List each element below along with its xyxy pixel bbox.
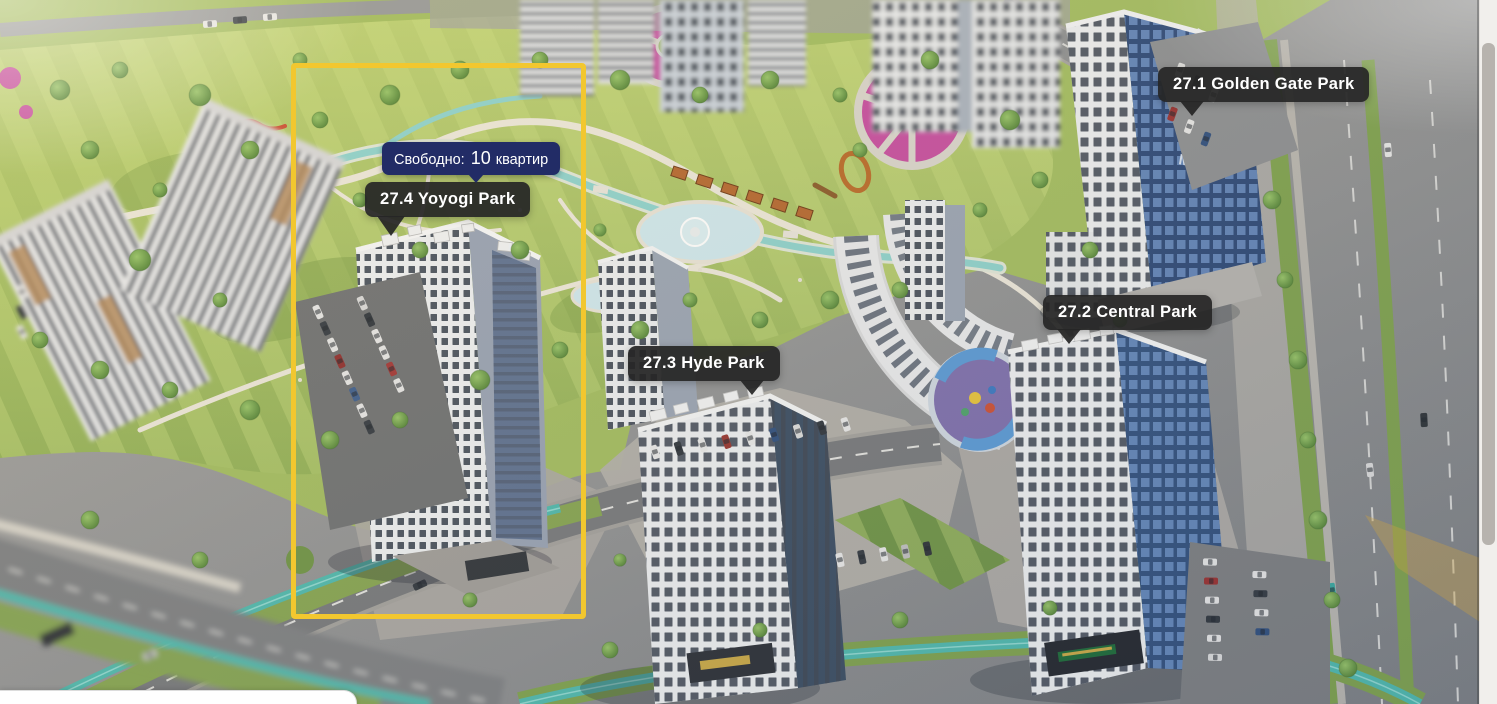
building-marker-27-4[interactable]: 27.4 Yoyogi Park: [365, 182, 530, 217]
building-marker-label: 27.4 Yoyogi Park: [380, 190, 515, 208]
availability-unit: квартир: [496, 152, 549, 168]
building-marker-label: 27.3 Hyde Park: [643, 354, 765, 372]
availability-label: Свободно:: [394, 152, 465, 168]
availability-count: 10: [471, 148, 491, 169]
scrollbar-thumb[interactable]: [1482, 43, 1495, 545]
marker-pointer-icon: [1180, 101, 1204, 116]
availability-tooltip: Свободно: 10 квартир: [382, 142, 560, 175]
tooltip-pointer-icon: [468, 174, 484, 183]
building-marker-label: 27.2 Central Park: [1058, 303, 1197, 321]
scrollbar[interactable]: [1479, 0, 1497, 704]
marker-pointer-icon: [1057, 329, 1081, 344]
building-marker-27-1[interactable]: 27.1 Golden Gate Park: [1158, 67, 1369, 102]
marker-pointer-icon: [377, 216, 405, 236]
marker-pointer-icon: [740, 380, 764, 395]
building-marker-27-3[interactable]: 27.3 Hyde Park: [628, 346, 780, 381]
page: MW: [0, 0, 1497, 704]
building-marker-label: 27.1 Golden Gate Park: [1173, 75, 1354, 93]
bottom-sheet-edge: [0, 690, 357, 704]
building-marker-27-2[interactable]: 27.2 Central Park: [1043, 295, 1212, 330]
haze-top-right: [740, 0, 1480, 300]
